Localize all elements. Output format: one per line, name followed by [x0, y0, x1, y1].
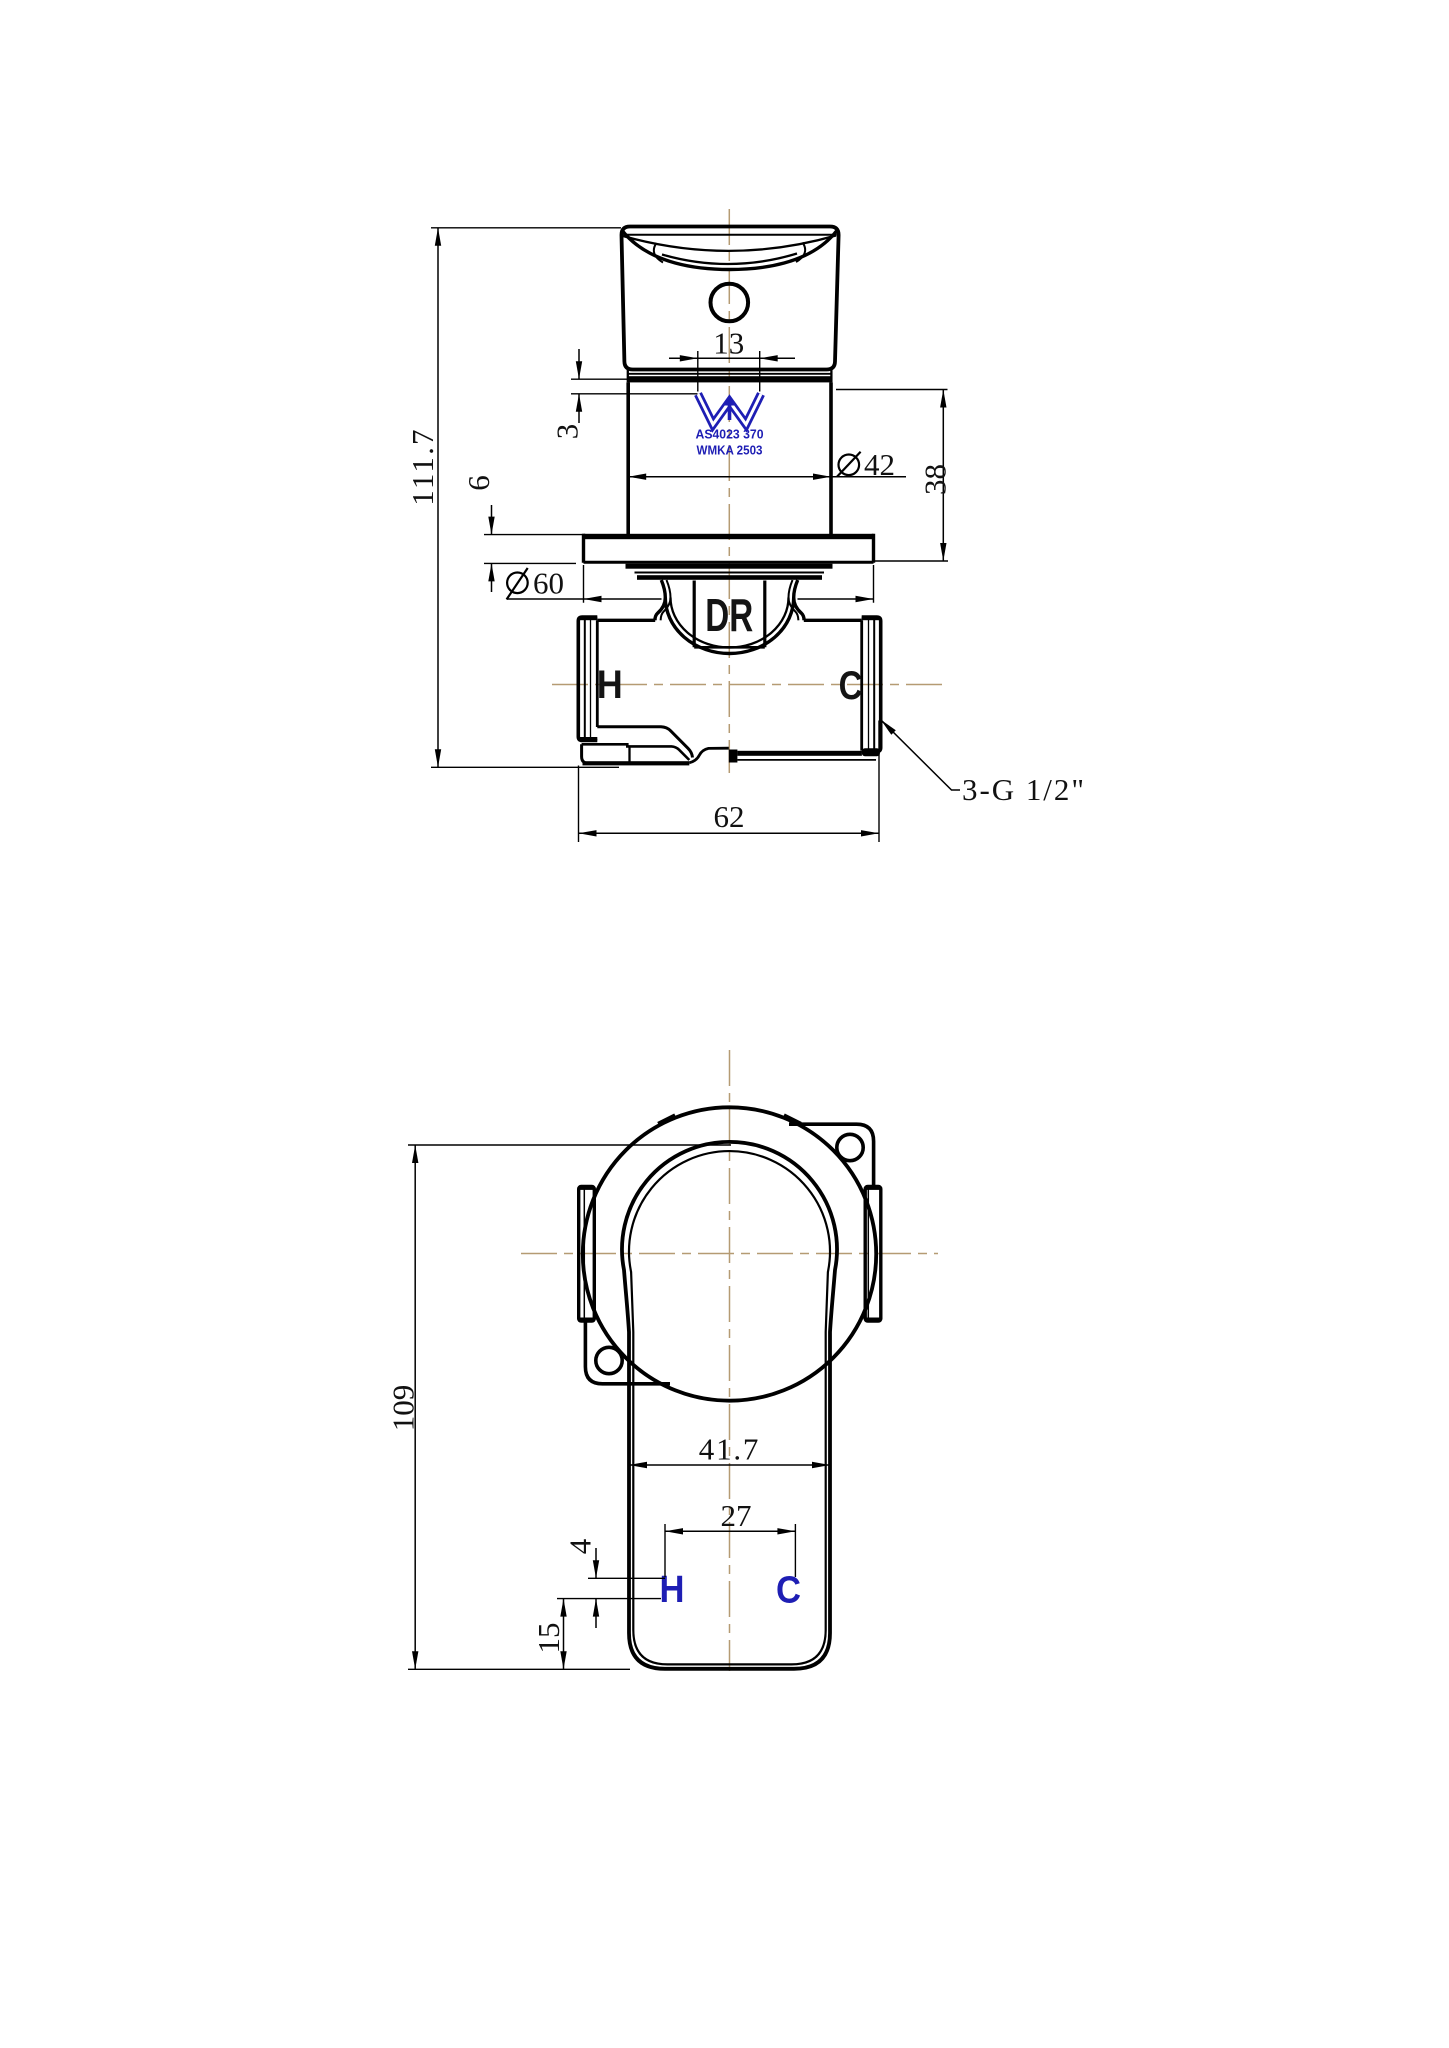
svg-text:3: 3 — [550, 424, 585, 440]
svg-text:6: 6 — [461, 475, 496, 491]
svg-text:60: 60 — [533, 566, 564, 601]
svg-text:H: H — [660, 1569, 685, 1611]
svg-text:15: 15 — [531, 1623, 566, 1654]
svg-text:H: H — [597, 663, 623, 707]
svg-text:111.7: 111.7 — [405, 427, 440, 505]
svg-text:WMKA 2503: WMKA 2503 — [697, 443, 763, 458]
svg-text:42: 42 — [864, 447, 895, 482]
svg-text:C: C — [839, 664, 863, 708]
svg-text:41.7: 41.7 — [699, 1432, 760, 1467]
svg-text:4: 4 — [563, 1538, 598, 1554]
svg-text:109: 109 — [386, 1385, 421, 1432]
svg-text:C: C — [776, 1570, 801, 1612]
svg-text:3-G 1/2": 3-G 1/2" — [962, 772, 1084, 807]
svg-text:AS4023 370: AS4023 370 — [696, 427, 764, 442]
svg-text:62: 62 — [714, 799, 745, 834]
svg-text:DR: DR — [705, 589, 753, 641]
svg-text:13: 13 — [713, 326, 744, 361]
svg-text:27: 27 — [721, 1498, 752, 1533]
svg-text:38: 38 — [918, 464, 953, 495]
